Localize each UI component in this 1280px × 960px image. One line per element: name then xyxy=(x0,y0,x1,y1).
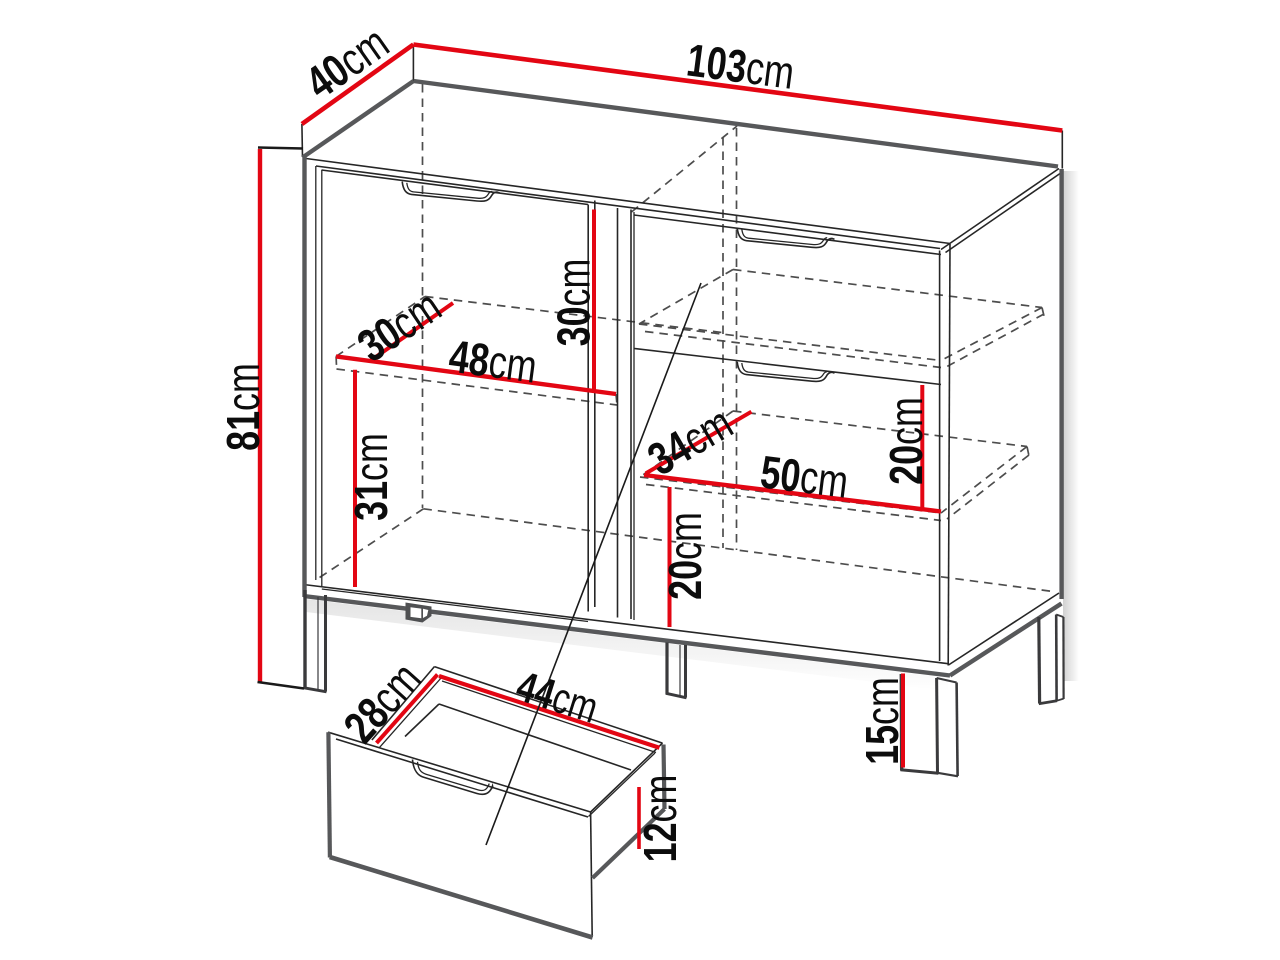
svg-text:20cm: 20cm xyxy=(881,397,932,485)
svg-text:50cm: 50cm xyxy=(758,446,851,508)
svg-text:30cm: 30cm xyxy=(548,259,599,347)
svg-text:20cm: 20cm xyxy=(660,512,711,600)
svg-text:12cm: 12cm xyxy=(635,775,686,863)
svg-text:31cm: 31cm xyxy=(346,433,397,521)
svg-text:81cm: 81cm xyxy=(218,363,269,451)
svg-text:15cm: 15cm xyxy=(857,677,908,765)
